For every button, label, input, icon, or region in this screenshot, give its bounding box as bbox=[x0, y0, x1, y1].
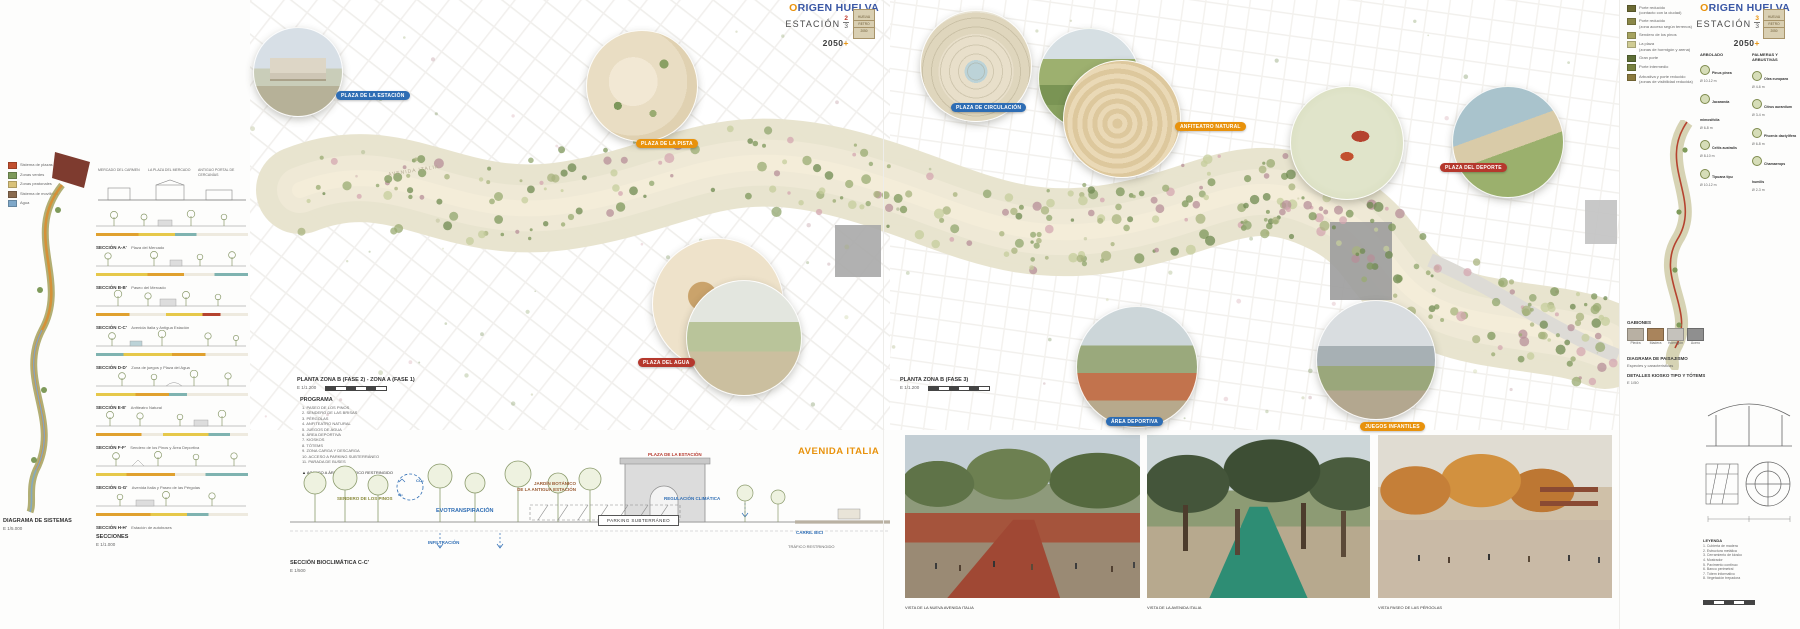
sections-key-drawing bbox=[98, 178, 246, 204]
section-row: SECCIÓN C-C' Avenida Italia y Antigua Es… bbox=[96, 290, 248, 334]
vignette-building bbox=[270, 58, 326, 81]
section-drawing bbox=[96, 290, 246, 308]
legend-swatch bbox=[1627, 18, 1636, 25]
section-row: SECCIÓN F-F' Sendero de los Pinos y Área… bbox=[96, 410, 248, 454]
palette-entry: Jacaranda mimosifoliaØ 6-8 m bbox=[1700, 90, 1748, 131]
sections-top-label-1: MERCADO DEL CARMEN bbox=[98, 168, 142, 173]
tree-icon bbox=[1752, 71, 1762, 81]
palette-entry: Celtis australisØ 8-10 m bbox=[1700, 136, 1748, 159]
kiosko-detail-drawings bbox=[1700, 384, 1798, 534]
material-swatch: Acero bbox=[1687, 328, 1704, 346]
palette-entry: Olea europaeaØ 4-6 m bbox=[1752, 67, 1798, 90]
legend-swatch bbox=[1627, 5, 1636, 12]
vignette-area-deportiva bbox=[1076, 306, 1198, 428]
sections-footer-scale: E 1/1.000 bbox=[96, 542, 115, 548]
bioclimatic-section-title: SECCIÓN BIOCLIMÁTICA C-C' bbox=[290, 560, 369, 567]
section-drawing bbox=[96, 370, 246, 388]
vignette-juegos-infantiles bbox=[1316, 300, 1436, 420]
tree-icon bbox=[1700, 65, 1710, 75]
label-sendero-pinos: SENDERO DE LOS PINOS bbox=[337, 496, 393, 502]
vignette-parque-deporte bbox=[1290, 86, 1404, 200]
label-jardin-botanico: JARDÍN BOTÁNICODE LA ANTIGUA ESTACIÓN bbox=[506, 481, 576, 493]
vignette-plaza-pista bbox=[586, 30, 698, 142]
plant-palette-col-1: ARBOLADO Pinus pineaØ 10-12 m Jacaranda … bbox=[1700, 52, 1748, 194]
board-seam bbox=[883, 0, 884, 629]
legend-swatch bbox=[1627, 41, 1636, 48]
kiosko-caption-sub: E 1/50 bbox=[1627, 380, 1639, 385]
tree-icon bbox=[1752, 128, 1762, 138]
materials-title: GABIONES bbox=[1627, 320, 1651, 326]
sheet-title: ESTACIÓN bbox=[785, 19, 840, 29]
badge-plaza-deporte: PLAZA DEL DEPORTE bbox=[1440, 163, 1507, 172]
tree-icon bbox=[1752, 156, 1762, 166]
legend-swatch bbox=[1627, 32, 1636, 39]
label-co2: CO₂ bbox=[416, 478, 424, 483]
tree-icon bbox=[1752, 99, 1762, 109]
render-pergola-structure bbox=[1540, 487, 1598, 492]
render-avenida-italia bbox=[1147, 435, 1370, 598]
palette-entry: Phoenix dactyliferaØ 6-8 m bbox=[1752, 124, 1798, 147]
section-drawing bbox=[96, 410, 246, 428]
render-paseo-pergolas bbox=[1378, 435, 1612, 598]
sections-top-label-2: LA PLAZA DEL MERCADO bbox=[148, 168, 192, 173]
palette-entry: Tipuana tipuØ 10-12 m bbox=[1700, 165, 1748, 188]
section-drawing bbox=[96, 450, 246, 468]
render-people bbox=[935, 563, 937, 569]
render-people bbox=[1418, 555, 1420, 561]
badge-plaza-agua: PLAZA DEL AGUA bbox=[638, 358, 695, 367]
palette-header: PALMERAS Y ARBUSTIVAS bbox=[1752, 52, 1798, 63]
plan2-scale-bar bbox=[928, 386, 990, 391]
badge-plaza-pista: PLAZA DE LA PISTA bbox=[636, 139, 698, 148]
kiosko-leyenda: LEYENDA 1. Cubierta de madera 2. Estruct… bbox=[1703, 538, 1795, 581]
plan1-title: PLANTA ZONA B (FASE 2) - ZONA A (FASE 1) bbox=[297, 377, 415, 384]
kiosko-caption: DETALLES KIOSKO TIPO Y TÓTEMS bbox=[1627, 373, 1705, 379]
plan1-scale-bar bbox=[325, 386, 387, 391]
label-parking-subterraneo: PARKING SUBTERRÁNEO bbox=[598, 515, 679, 526]
render-track bbox=[905, 435, 1140, 598]
vignette-trees bbox=[587, 31, 697, 141]
vignette-anfiteatro bbox=[1063, 60, 1181, 178]
palette-entry: Citrus aurantiumØ 3-4 m bbox=[1752, 95, 1798, 118]
render-caption-3: VISTA PASEO DE LAS PÉRGOLAS bbox=[1378, 605, 1442, 610]
material-swatch: Hormigón bbox=[1667, 328, 1684, 346]
plant-palette-col-2: PALMERAS Y ARBUSTIVAS Olea europaeaØ 4-6… bbox=[1752, 52, 1798, 199]
sheet-title: ESTACIÓN bbox=[1696, 19, 1751, 29]
tree-icon bbox=[1700, 169, 1710, 179]
section-drawing bbox=[96, 250, 246, 268]
palette-header: ARBOLADO bbox=[1700, 52, 1748, 57]
systems-caption: DIAGRAMA DE SISTEMAS bbox=[3, 518, 72, 525]
badge-plaza-circulacion: PLAZA DE CIRCULACIÓN bbox=[951, 103, 1026, 112]
render-caption-2: VISTA DE LA AVENIDA ITALIA bbox=[1147, 605, 1201, 610]
material-swatch: Piedra bbox=[1627, 328, 1644, 346]
year-label: 2050+ bbox=[1734, 38, 1760, 48]
section-row: SECCIÓN A-A' Plaza del Mercado bbox=[96, 210, 248, 254]
render-nueva-avenida-italia bbox=[905, 435, 1140, 598]
legend-swatch bbox=[1627, 74, 1636, 81]
vignette-parque-gente bbox=[686, 280, 802, 396]
board-seam bbox=[1619, 0, 1620, 629]
bioclimatic-section-scale: E 1/500 bbox=[290, 568, 306, 574]
render-tree-trunks bbox=[1183, 505, 1188, 551]
render-green-path bbox=[1147, 435, 1370, 598]
section-drawing bbox=[96, 210, 246, 228]
tree-icon bbox=[1700, 94, 1710, 104]
render-caption-1: VISTA DE LA NUEVA AVENIDA ITALIA bbox=[905, 605, 974, 610]
label-o2: O₂ bbox=[398, 492, 403, 497]
vignette-plaza-estacion bbox=[253, 27, 343, 117]
section-drawing bbox=[96, 330, 246, 348]
paisajismo-caption: DIAGRAMA DE PAISAJISMO bbox=[1627, 356, 1688, 362]
section-drawing bbox=[96, 490, 246, 508]
sections-footer: SECCIONES bbox=[96, 534, 128, 541]
vignette-costa bbox=[1452, 86, 1564, 198]
section-row: SECCIÓN D-D' Zona de juegos y Plaza del … bbox=[96, 330, 248, 374]
legend-swatch bbox=[1627, 55, 1636, 62]
materials-swatches: Piedra Madera Hormigón Acero bbox=[1627, 328, 1704, 346]
systems-diagram bbox=[0, 140, 95, 520]
label-plaza-estacion-section: PLAZA DE LA ESTACIÓN bbox=[648, 452, 702, 458]
label-regulacion-climatica: REGULACIÓN CLIMÁTICA bbox=[664, 496, 720, 502]
badge-area-deportiva: ÁREA DEPORTIVA bbox=[1106, 417, 1163, 426]
plan1-scale-label: E 1/1.200 bbox=[297, 385, 316, 391]
programa-title: PROGRAMA bbox=[300, 397, 333, 404]
systems-scale: E 1/5.000 bbox=[3, 526, 22, 532]
stamp-badge-left: HUELVA RETRO 2050 bbox=[853, 9, 875, 39]
label-infiltracion: INFILTRACIÓN bbox=[428, 540, 459, 546]
palette-entry: Chamaerops humilisØ 2-3 m bbox=[1752, 152, 1798, 193]
label-evotranspiracion: EVOTRANSPIRACIÓN bbox=[436, 508, 493, 515]
kiosko-scale-bar bbox=[1703, 600, 1755, 605]
section-row: SECCIÓN G-G' Avenida Italia y Paseo de l… bbox=[96, 450, 248, 494]
section-row: SECCIÓN H-H' Estación de autobuses bbox=[96, 490, 248, 534]
badge-juegos-infantiles: JUEGOS INFANTILES bbox=[1360, 422, 1425, 431]
label-trafico-restringido: TRÁFICO RESTRINGIDO bbox=[788, 544, 834, 549]
badge-plaza-estacion: PLAZA DE LA ESTACIÓN bbox=[336, 91, 410, 100]
section-row: SECCIÓN E-E' Anfiteatro Natural bbox=[96, 370, 248, 414]
label-carril-bici: CARRIL BICI bbox=[796, 530, 823, 536]
palette-entry: Pinus pineaØ 10-12 m bbox=[1700, 61, 1748, 84]
paisajismo-caption-sub: Especies y características bbox=[1627, 363, 1673, 368]
material-swatch: Madera bbox=[1647, 328, 1664, 346]
label-avenida-italia: AVENIDA ITALIA bbox=[798, 446, 879, 457]
sections-top-label-3: ANTIGUO PORTAL DE CERCANÍAS bbox=[198, 168, 244, 177]
badge-anfiteatro: ANFITEATRO NATURAL bbox=[1175, 122, 1246, 131]
plan2-title: PLANTA ZONA B (FASE 3) bbox=[900, 377, 968, 384]
year-label: 2050+ bbox=[823, 38, 849, 48]
section-row: SECCIÓN B-B' Paseo del Mercado bbox=[96, 250, 248, 294]
tree-icon bbox=[1700, 140, 1710, 150]
plan2-scale-label: E 1/1.200 bbox=[900, 385, 919, 391]
legend-swatch bbox=[1627, 64, 1636, 71]
stamp-badge-right: HUELVA RETRO 2050 bbox=[1763, 9, 1785, 39]
